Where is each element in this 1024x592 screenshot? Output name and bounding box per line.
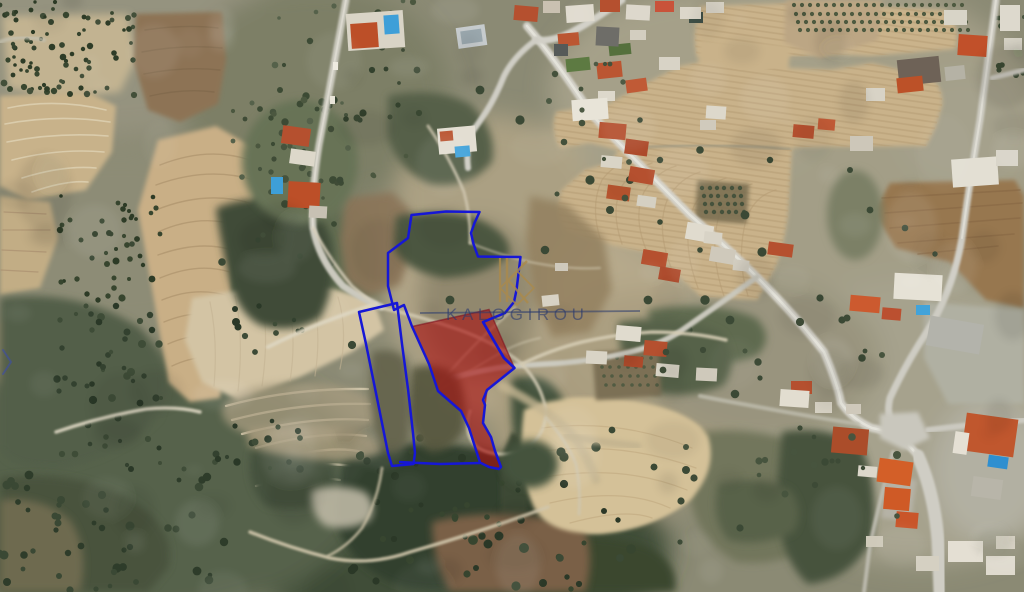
svg-text:KALOGIROU: KALOGIROU <box>446 305 588 324</box>
